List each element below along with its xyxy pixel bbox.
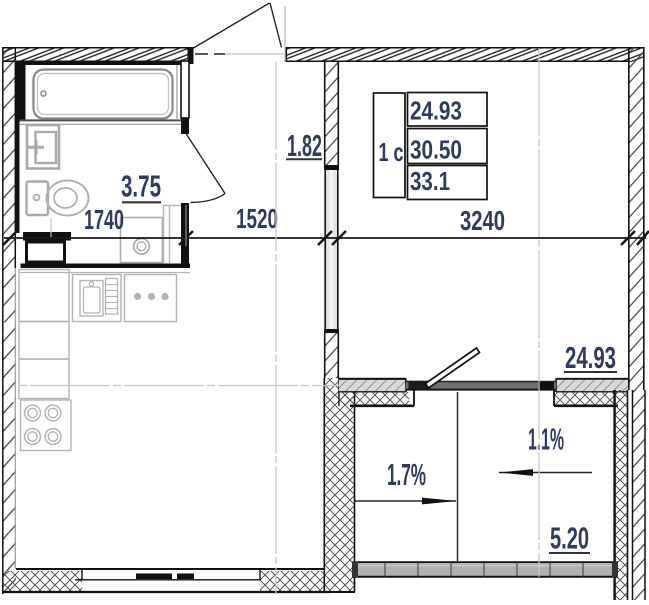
svg-text:24.93: 24.93 [565,340,616,375]
svg-text:5.20: 5.20 [550,521,589,556]
svg-text:30.50: 30.50 [410,135,462,165]
svg-text:3.75: 3.75 [121,169,161,204]
svg-text:1 с: 1 с [379,137,404,167]
svg-text:1.1%: 1.1% [528,422,564,457]
svg-text:1.82: 1.82 [287,128,322,163]
svg-text:1740: 1740 [84,204,124,235]
svg-text:3240: 3240 [460,205,505,236]
svg-text:1520: 1520 [236,203,278,234]
svg-text:33.1: 33.1 [410,166,450,196]
svg-text:1.7%: 1.7% [387,457,426,492]
svg-text:24.93: 24.93 [410,96,462,126]
